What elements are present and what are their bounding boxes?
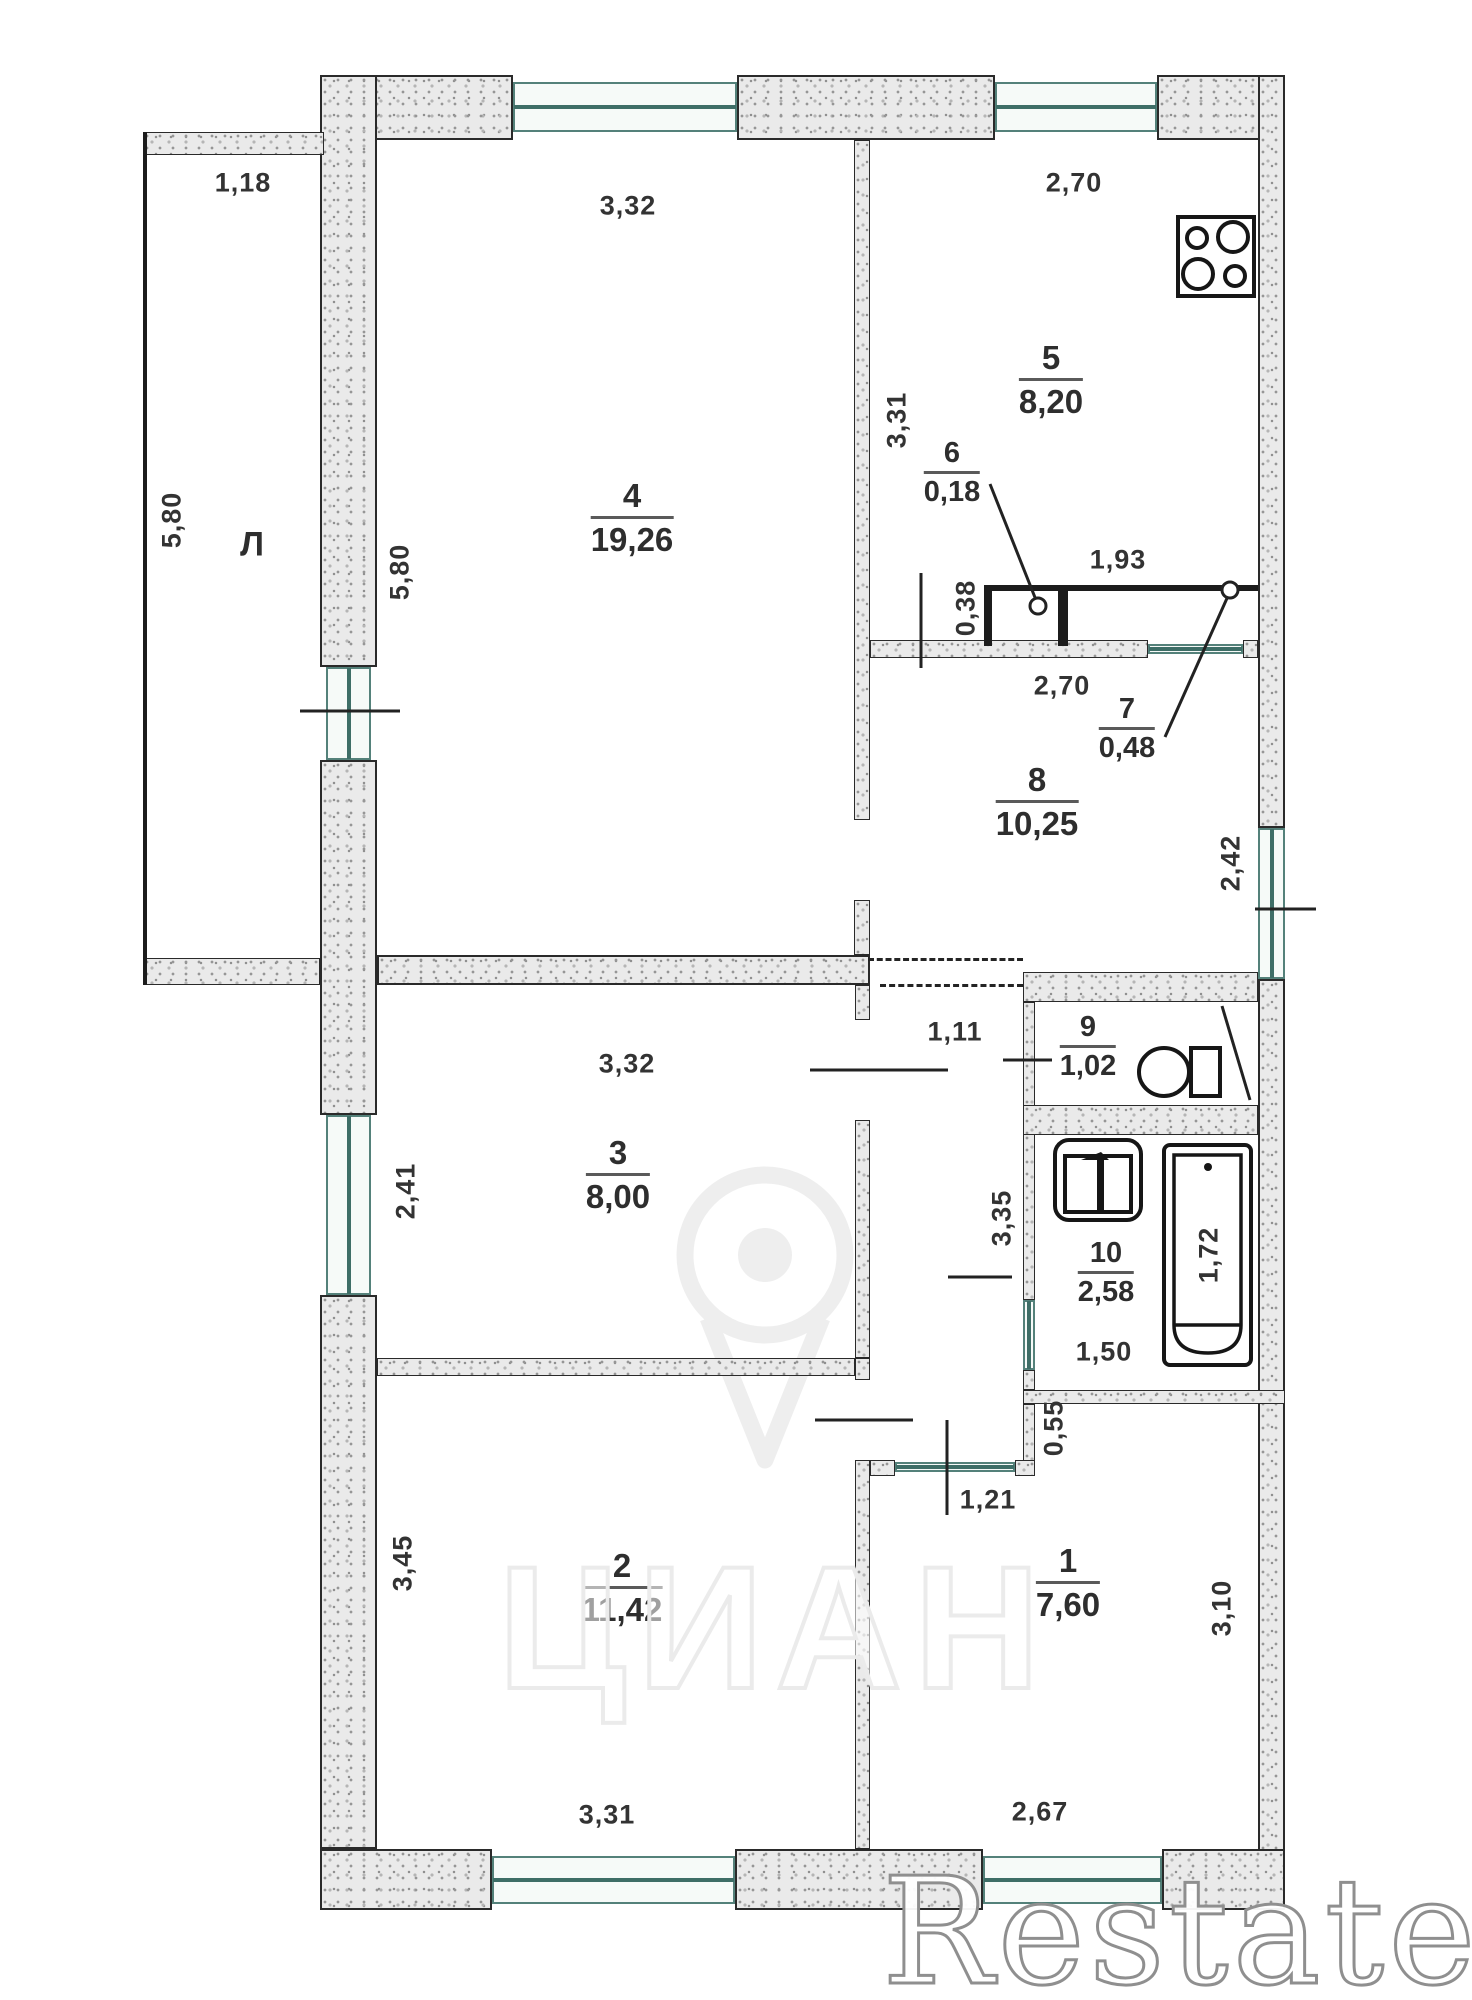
dim-kitchen-side: 3,31 bbox=[882, 392, 913, 449]
floor-plan: Л 4 19,26 5 8,20 6 0,18 7 0,48 8 10,25 3… bbox=[0, 0, 1472, 2000]
dim-balcony-width: 1,18 bbox=[215, 168, 272, 199]
room-label-balcony: Л bbox=[240, 526, 264, 565]
toilet-icon bbox=[1136, 1044, 1226, 1100]
stove-icon bbox=[1176, 215, 1256, 298]
dim-hall-top: 2,70 bbox=[1034, 671, 1091, 702]
dim-stub: 0,55 bbox=[1039, 1400, 1070, 1457]
dim-corridor-side: 3,35 bbox=[987, 1190, 1018, 1247]
room-label-3: 3 8,00 bbox=[586, 1135, 650, 1215]
dim-room1-side: 3,10 bbox=[1207, 1580, 1238, 1637]
room-10-area: 2,58 bbox=[1078, 1274, 1134, 1309]
dim-closet-width: 1,93 bbox=[1090, 545, 1147, 576]
dim-room3-top: 3,32 bbox=[599, 1049, 656, 1080]
room-8-area: 10,25 bbox=[996, 803, 1079, 842]
leader-room7 bbox=[1165, 596, 1228, 737]
dim-bathtub: 1,72 bbox=[1194, 1227, 1225, 1284]
room-5-number: 5 bbox=[1019, 340, 1083, 381]
dim-room3-window: 2,41 bbox=[391, 1163, 422, 1220]
dim-hall-window: 2,42 bbox=[1216, 835, 1247, 892]
cian-watermark-text: ЦИАН bbox=[498, 1528, 1052, 1729]
room-6-number: 6 bbox=[924, 438, 980, 474]
dim-corridor-top: 1,11 bbox=[927, 1017, 982, 1048]
dim-door: 1,21 bbox=[960, 1485, 1017, 1516]
dim-kitchen-top: 2,70 bbox=[1046, 168, 1103, 199]
room-label-10: 10 2,58 bbox=[1078, 1238, 1134, 1309]
room-7-number: 7 bbox=[1099, 694, 1155, 730]
dim-room4-top: 3,32 bbox=[600, 191, 657, 222]
room-label-7: 7 0,48 bbox=[1099, 694, 1155, 765]
sink-icon bbox=[1053, 1138, 1143, 1222]
room-7-area: 0,48 bbox=[1099, 730, 1155, 765]
room-6-area: 0,18 bbox=[924, 474, 980, 509]
dim-room2-side: 3,45 bbox=[388, 1535, 419, 1592]
dim-bath-width: 1,50 bbox=[1076, 1337, 1133, 1368]
room-10-number: 10 bbox=[1078, 1238, 1134, 1274]
restate-watermark-text: Restate bbox=[882, 1858, 1472, 2000]
room-8-number: 8 bbox=[996, 762, 1079, 803]
leader-room7-end bbox=[1222, 582, 1238, 598]
dim-balcony-height: 5,80 bbox=[157, 492, 188, 549]
dim-room4-side: 5,80 bbox=[385, 544, 416, 601]
dim-closet-depth: 0,38 bbox=[951, 580, 982, 637]
room-3-number: 3 bbox=[586, 1135, 650, 1176]
leader-room6-end bbox=[1030, 598, 1046, 614]
room-4-number: 4 bbox=[591, 478, 674, 519]
room-label-8: 8 10,25 bbox=[996, 762, 1079, 842]
room-label-4: 4 19,26 bbox=[591, 478, 674, 558]
dim-room1-bottom: 2,67 bbox=[1012, 1797, 1069, 1828]
room-4-area: 19,26 bbox=[591, 519, 674, 558]
wc-vent-diagonal bbox=[1222, 1006, 1250, 1100]
room-label-6: 6 0,18 bbox=[924, 438, 980, 509]
room-9-number: 9 bbox=[1060, 1012, 1116, 1048]
room-3-area: 8,00 bbox=[586, 1176, 650, 1215]
room-5-area: 8,20 bbox=[1019, 381, 1083, 420]
dim-room2-bottom: 3,31 bbox=[579, 1800, 636, 1831]
room-label-5: 5 8,20 bbox=[1019, 340, 1083, 420]
leader-room6 bbox=[990, 484, 1036, 600]
room-label-9: 9 1,02 bbox=[1060, 1012, 1116, 1083]
room-9-area: 1,02 bbox=[1060, 1048, 1116, 1083]
